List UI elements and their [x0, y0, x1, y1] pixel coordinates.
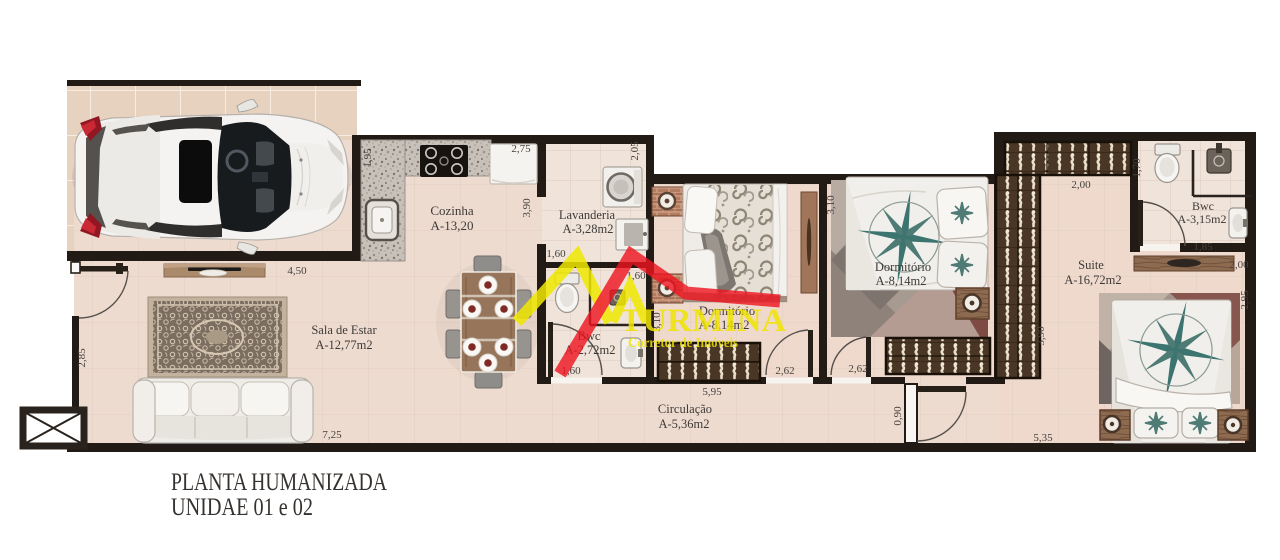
svg-text:Cozinha: Cozinha	[430, 203, 474, 218]
svg-text:2,05: 2,05	[629, 141, 641, 161]
svg-text:2,62: 2,62	[775, 365, 794, 377]
svg-text:2,00: 2,00	[1071, 179, 1091, 191]
svg-text:UNIDAE 01 e 02: UNIDAE 01 e 02	[171, 494, 313, 521]
svg-text:Bwc: Bwc	[1192, 199, 1214, 213]
svg-text:1,70: 1,70	[1131, 158, 1143, 178]
svg-text:2,00: 2,00	[1229, 259, 1249, 271]
svg-text:PLANTA HUMANIZADA: PLANTA HUMANIZADA	[171, 469, 387, 496]
svg-text:A-13,20: A-13,20	[431, 218, 474, 233]
svg-text:Dormitório: Dormitório	[875, 260, 931, 274]
svg-text:2,95: 2,95	[1239, 290, 1251, 310]
svg-text:3,10: 3,10	[825, 195, 837, 215]
svg-text:Sala de Estar: Sala de Estar	[311, 323, 377, 337]
svg-text:1,60: 1,60	[546, 248, 566, 260]
svg-text:0,90: 0,90	[892, 406, 904, 426]
svg-text:2,85: 2,85	[76, 348, 88, 368]
svg-text:Circulação: Circulação	[658, 402, 712, 416]
svg-text:5,35: 5,35	[1033, 432, 1053, 444]
svg-text:A-3,28m2: A-3,28m2	[562, 222, 613, 236]
svg-text:A-8,14m2: A-8,14m2	[875, 274, 926, 288]
svg-text:A-16,72m2: A-16,72m2	[1064, 273, 1121, 287]
svg-text:1,85: 1,85	[1193, 241, 1213, 253]
svg-text:Suite: Suite	[1078, 258, 1104, 272]
svg-text:TURMINA: TURMINA	[620, 303, 786, 339]
svg-text:7,25: 7,25	[322, 429, 342, 441]
svg-text:Lavanderia: Lavanderia	[559, 208, 616, 222]
svg-text:3,90: 3,90	[1035, 326, 1047, 346]
svg-text:3,90: 3,90	[521, 198, 533, 218]
svg-text:A-3,15m2: A-3,15m2	[1178, 212, 1227, 226]
svg-text:A-12,77m2: A-12,77m2	[315, 338, 372, 352]
svg-text:4,50: 4,50	[287, 265, 307, 277]
svg-text:2,62: 2,62	[848, 363, 867, 375]
svg-text:Corretor de Imóveis: Corretor de Imóveis	[628, 336, 738, 351]
svg-text:1,95: 1,95	[362, 148, 374, 168]
svg-text:2,75: 2,75	[511, 143, 531, 155]
svg-text:A-5,36m2: A-5,36m2	[658, 417, 709, 431]
svg-text:5,95: 5,95	[702, 386, 722, 398]
